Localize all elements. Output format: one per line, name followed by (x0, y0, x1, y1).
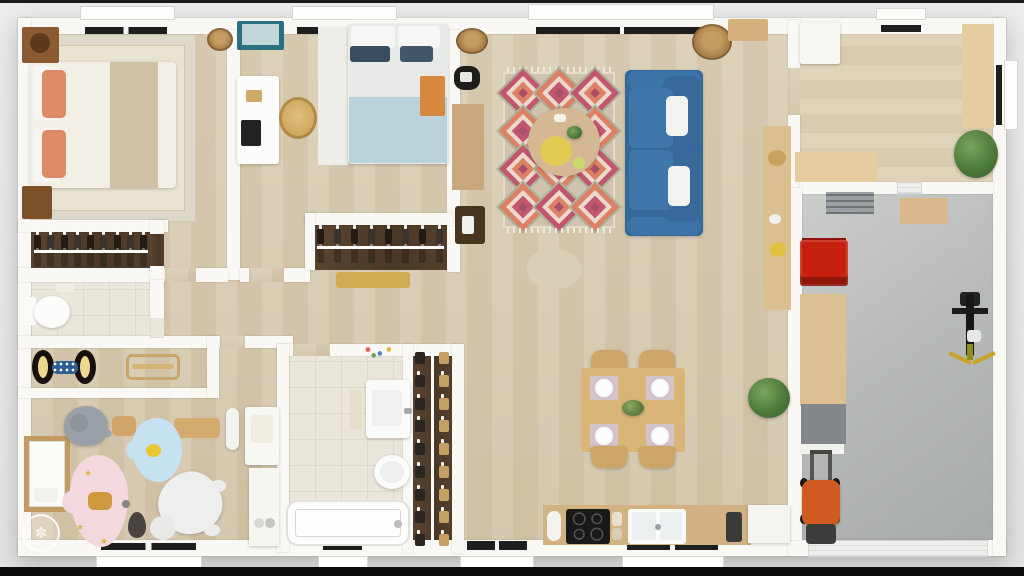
hanger-icon (415, 352, 425, 364)
hanger-icon (415, 534, 425, 546)
kitchen-sink-basin-2 (660, 512, 682, 540)
bathtub (286, 500, 410, 546)
hanger-icon (439, 511, 449, 523)
bed2-pillow-navy-2 (400, 46, 433, 62)
kitchen-utensil-jar (547, 511, 561, 541)
door-bathroom2 (293, 344, 330, 356)
mower-body (802, 480, 840, 526)
toilet1-bowl (34, 296, 70, 328)
hanger-reflection-icon (317, 248, 324, 263)
kitchen-cooktop (566, 509, 610, 544)
hanger-icon (439, 398, 449, 410)
console-right-vase (770, 242, 786, 257)
hanger-icon (439, 489, 449, 501)
rug-bear-paw-2 (204, 524, 220, 536)
toy-horse (112, 416, 136, 436)
kids-cabinet-towel-2 (265, 518, 275, 528)
hanger-reflection-icon (436, 248, 443, 263)
window-sill-mudroom (876, 8, 926, 20)
wall-hall-b (196, 268, 228, 282)
window-sill-right (1004, 60, 1018, 130)
hanger-icon (415, 420, 425, 432)
door-garage-threshold (897, 182, 922, 194)
bath2-shelf (350, 390, 362, 430)
hanger-icon (415, 398, 425, 410)
hanger-reflection-icon (334, 248, 341, 263)
patio-door-frame (467, 541, 527, 550)
hanger-reflection-icon (351, 248, 358, 263)
bed2-pillow-white-2 (398, 26, 440, 48)
hanger-icon (334, 229, 341, 244)
bath2-vanity-sink (372, 390, 402, 426)
mower-handle-left (810, 452, 814, 482)
hanger-reflection-icon (47, 252, 54, 267)
window-sill-living (528, 4, 714, 20)
living-pouf (527, 249, 581, 289)
toy-pendulum-beads (122, 500, 130, 508)
bath1-shelf (56, 284, 74, 292)
hanger-icon (317, 229, 324, 244)
hanger-icon (415, 489, 425, 501)
hanger-icon (368, 229, 375, 244)
hanger-reflection-icon (87, 252, 94, 267)
rug-pink-star-3: ★ (100, 536, 110, 546)
hanger-icon (419, 229, 426, 244)
toy-pendulum (128, 512, 146, 538)
wall-closet2-left (305, 213, 315, 270)
nook-roller-ring-1 (32, 350, 54, 384)
wall-hall-c (240, 268, 249, 282)
window-frame-kids (101, 543, 196, 550)
kilim-diamond (577, 188, 613, 226)
sideboard-top (728, 19, 768, 41)
stool-tray-cards (460, 72, 472, 82)
changing-pad (251, 415, 273, 443)
console-right-bowl (768, 150, 786, 166)
hanger-reflection-icon (419, 248, 426, 263)
tv-console (452, 104, 484, 190)
door-closet1 (150, 234, 164, 266)
hanger-icon (439, 420, 449, 432)
hanger-icon (415, 443, 425, 455)
edge-bar-top (0, 0, 1024, 3)
hanger-reflection-icon (127, 252, 134, 267)
bathtub-faucet (394, 520, 402, 528)
mudroom-plant (954, 130, 998, 178)
wall-above-closet2 (305, 213, 453, 225)
rug-bear-head (150, 516, 176, 540)
tool-cart (800, 240, 848, 286)
coffee-table-bowl (573, 157, 585, 169)
coffee-table-tray (540, 136, 572, 166)
dining-chair-3 (591, 446, 627, 468)
nook-toy-bench-bar (132, 364, 174, 369)
hallway-bench (336, 272, 410, 288)
rug-pink-star-2: ★ (76, 522, 86, 532)
hanger-icon (415, 375, 425, 387)
kids-cabinet (249, 468, 279, 546)
plate-4 (651, 427, 669, 445)
wall-bath1-right-a (150, 280, 164, 318)
console-right-cup (769, 214, 781, 224)
door-kidsroom (220, 336, 245, 348)
rug-pink-bump (62, 490, 86, 514)
kitchen-jar-1 (612, 512, 622, 526)
hanger-reflection-icon (100, 252, 107, 267)
hanger-reflection-icon (385, 248, 392, 263)
hanger-reflection-icon (61, 252, 68, 267)
wall-above-closet1 (18, 220, 168, 232)
bed2-pillow-navy-1 (350, 46, 390, 62)
bath2-wall-flowers (360, 346, 396, 358)
rug-blue-bump (126, 440, 146, 460)
garage-workbench (800, 294, 846, 406)
wall-nook-right (207, 336, 219, 398)
wall-hall-d (284, 268, 310, 282)
kitchen-faucet (655, 524, 661, 530)
hanger-icon (415, 466, 425, 478)
desk-paper (246, 90, 262, 102)
mudroom-bench-right (962, 24, 994, 128)
kitchen-sink-basin-1 (632, 512, 656, 540)
hanger-icon (436, 229, 443, 244)
kitchen-end-cabinet (748, 505, 790, 543)
mower-handle-bar (810, 450, 832, 454)
hanger-reflection-icon (402, 248, 409, 263)
bedroom1-pouf (207, 28, 233, 51)
basket-entry (456, 28, 488, 54)
mower-handle-right (828, 452, 832, 482)
memo-board-inner (242, 24, 279, 45)
watermark-logo: ✽ (22, 514, 60, 552)
bed2-throw-orange (420, 76, 445, 116)
hanger-icon (439, 443, 449, 455)
door-bedroom2 (249, 268, 284, 282)
edge-bar-bottom (0, 567, 1024, 576)
plush-elephant-ear (70, 414, 88, 432)
nightstand-bottom (22, 186, 52, 219)
hanger-icon (385, 229, 392, 244)
wall-closet3-right (452, 344, 464, 553)
window-frame-right (996, 65, 1002, 125)
hanger-reflection-icon (140, 252, 147, 267)
sofa-pillow-1 (666, 96, 688, 136)
wall-garage-top-b (922, 182, 993, 194)
table-centerpiece (622, 400, 644, 416)
window-sill-bedroom1 (80, 6, 175, 20)
plate-2 (651, 379, 669, 397)
door-mudroom (788, 68, 800, 115)
kitchen-coffee-maker (726, 512, 742, 542)
wall-nook-bottom (18, 388, 210, 398)
coffee-table-plant (567, 126, 582, 139)
dining-chair-4 (639, 446, 675, 468)
kitchen-jar-2 (612, 528, 622, 540)
kids-floor-lamp (226, 408, 239, 450)
toilet2-seat (380, 461, 404, 483)
closet3-rod (431, 351, 434, 549)
toy-xylophone (174, 418, 220, 438)
window-frame-mudroom (881, 25, 921, 32)
coffee-table-deco (554, 114, 566, 122)
sofa-seat-2 (629, 150, 673, 210)
window-frame-living-b (624, 27, 704, 34)
plate-3 (595, 427, 613, 445)
gym-seat (967, 330, 981, 342)
gym-leg-stem (967, 344, 973, 360)
garage-metal-shelf (826, 192, 874, 214)
door-bedroom1 (165, 268, 196, 282)
nook-roller-bar (52, 361, 78, 374)
floorplan-canvas: ★★★✽ (0, 0, 1024, 576)
hanger-icon (439, 375, 449, 387)
rug-bear-paw-1 (210, 480, 226, 492)
desk-chair (279, 97, 317, 139)
gym-arms (952, 308, 988, 314)
hanger-icon (402, 229, 409, 244)
hanger-icon (415, 511, 425, 523)
side-table-remote (462, 216, 474, 234)
hanger-reflection-icon (368, 248, 375, 263)
bed1-pillow-coral-2 (42, 130, 66, 178)
wall-closet1-right-a (150, 220, 164, 234)
closet1-rod (34, 250, 148, 253)
toy-duck (146, 444, 161, 457)
bed1-pillow-coral-1 (42, 70, 66, 118)
hanger-reflection-icon (114, 252, 121, 267)
mudroom-bench-bottom (795, 152, 877, 182)
bedroom2-stripe-rug (318, 27, 348, 165)
hanger-icon (439, 534, 449, 546)
plate-1 (595, 379, 613, 397)
hanger-icon (439, 352, 449, 364)
toy-crown (88, 492, 112, 510)
window-frame-bedroom1 (85, 27, 167, 34)
rug-pink-star-1: ★ (84, 468, 94, 478)
nightstand-top-tray (30, 33, 50, 53)
sofa-pillow-2 (668, 166, 690, 206)
hanger-icon (439, 466, 449, 478)
bed2-pillow-white-1 (351, 26, 395, 48)
window-sill-bedroom2 (292, 6, 397, 20)
desk-laptop (241, 120, 261, 146)
crib-pillow (34, 488, 58, 502)
hanger-icon (351, 229, 358, 244)
door-bathroom1 (150, 318, 164, 338)
wall-hall-a (18, 268, 165, 282)
window-frame-living-a (536, 27, 620, 34)
wall-mudroom-left-a (788, 20, 800, 68)
mower-bag (806, 524, 836, 544)
bath2-faucet (404, 408, 412, 414)
closet2-rod (317, 246, 444, 249)
kids-cabinet-towel-1 (254, 518, 264, 528)
mudroom-cabinet (800, 22, 840, 64)
dining-plant (748, 378, 790, 418)
hanger-reflection-icon (34, 252, 41, 267)
bed1-runner (110, 62, 158, 188)
garage-gray-cabinet (801, 404, 846, 444)
garage-mat (900, 198, 948, 224)
wall-kids-top-a (18, 336, 220, 348)
hanger-reflection-icon (74, 252, 81, 267)
basket-top (692, 24, 732, 60)
